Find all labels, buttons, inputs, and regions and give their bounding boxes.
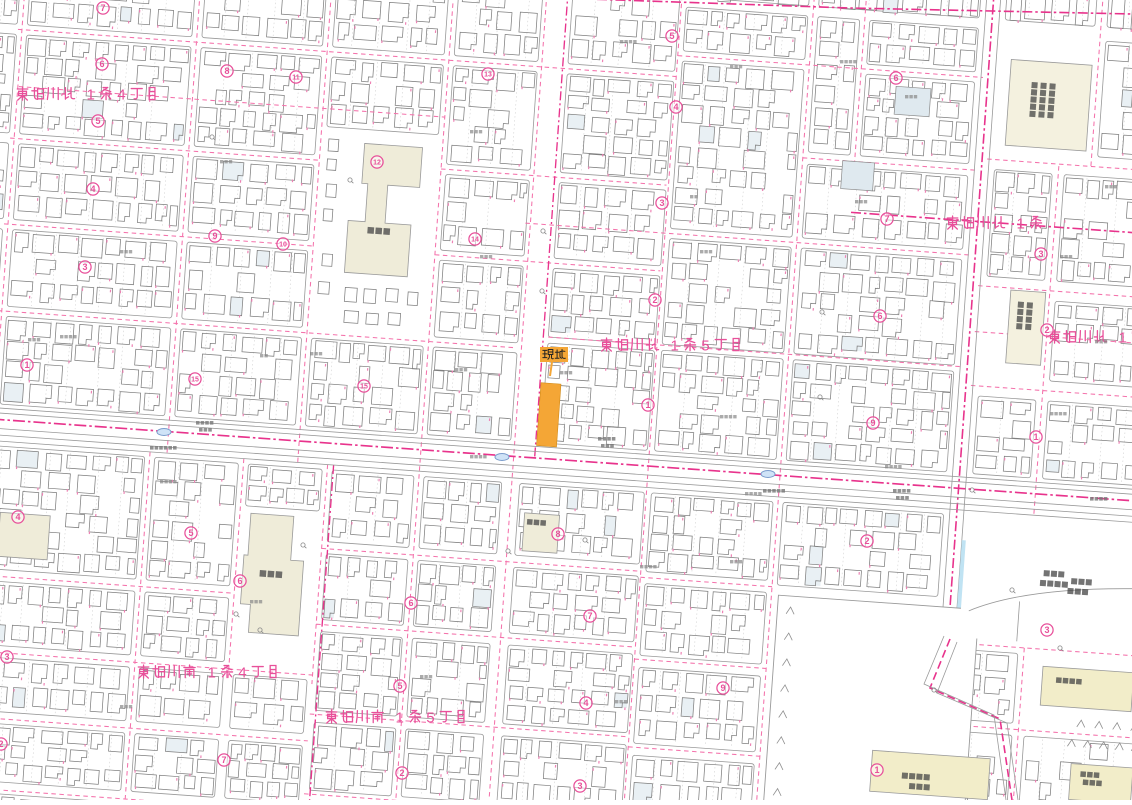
svg-text:3: 3 (1038, 249, 1043, 259)
svg-text:8: 8 (555, 529, 560, 539)
svg-text:6: 6 (237, 576, 242, 586)
svg-text:2: 2 (864, 536, 869, 546)
svg-text:13: 13 (484, 72, 492, 79)
svg-text:9: 9 (870, 418, 875, 428)
svg-text:7: 7 (884, 214, 889, 224)
svg-text:4: 4 (117, 86, 125, 103)
svg-text:1: 1 (874, 765, 879, 775)
svg-text:3: 3 (4, 652, 9, 662)
svg-text:7: 7 (587, 611, 592, 621)
svg-text:1: 1 (208, 664, 216, 681)
svg-text:5: 5 (426, 709, 434, 726)
svg-text:9: 9 (212, 231, 217, 241)
svg-text:7: 7 (221, 755, 226, 765)
svg-text:6: 6 (99, 59, 104, 69)
svg-text:11: 11 (292, 75, 300, 82)
svg-text:14: 14 (471, 237, 479, 244)
svg-text:15: 15 (191, 377, 199, 384)
svg-text:4: 4 (238, 664, 246, 681)
svg-text:3: 3 (659, 198, 664, 208)
svg-text:5: 5 (701, 337, 709, 354)
svg-text:5: 5 (669, 31, 674, 41)
svg-text:1: 1 (1033, 432, 1038, 442)
svg-text:1: 1 (87, 86, 95, 103)
svg-text:4: 4 (583, 698, 588, 708)
svg-text:2: 2 (1044, 325, 1049, 335)
svg-text:2: 2 (399, 768, 404, 778)
svg-text:2: 2 (0, 739, 4, 749)
svg-text:6: 6 (408, 598, 413, 608)
svg-text:1: 1 (396, 709, 404, 726)
svg-text:1: 1 (1119, 329, 1127, 346)
svg-text:7: 7 (100, 3, 105, 13)
svg-text:15: 15 (360, 384, 368, 391)
svg-text:9: 9 (720, 683, 725, 693)
svg-text:12: 12 (373, 160, 381, 167)
svg-text:1: 1 (671, 337, 679, 354)
svg-text:5: 5 (188, 528, 193, 538)
svg-text:2: 2 (652, 295, 657, 305)
svg-text:1: 1 (24, 360, 29, 370)
svg-text:5: 5 (397, 681, 402, 691)
svg-text:8: 8 (224, 66, 229, 76)
svg-text:4: 4 (15, 512, 20, 522)
svg-text:5: 5 (95, 116, 100, 126)
svg-text:4: 4 (673, 102, 678, 112)
svg-text:3: 3 (577, 781, 582, 791)
svg-text:10: 10 (279, 242, 287, 249)
svg-text:6: 6 (893, 73, 898, 83)
svg-text:3: 3 (1044, 625, 1049, 635)
svg-text:1: 1 (645, 400, 650, 410)
svg-text:6: 6 (877, 311, 882, 321)
svg-text:4: 4 (90, 184, 95, 194)
svg-text:3: 3 (82, 262, 87, 272)
svg-text:1: 1 (1017, 215, 1025, 232)
